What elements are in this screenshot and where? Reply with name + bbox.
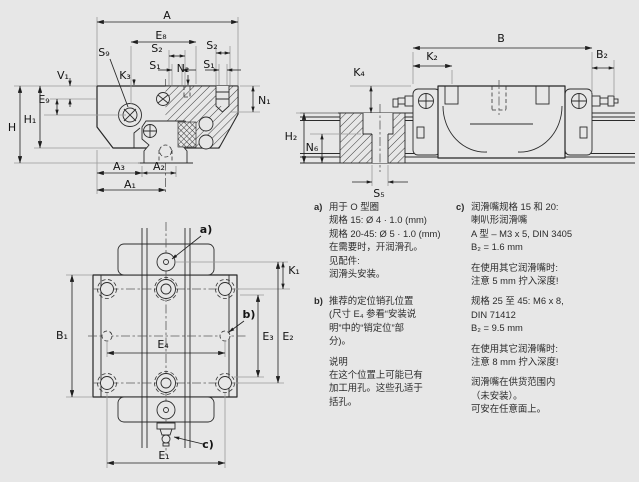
note-b: b) 推荐的定位销孔位置 (尺寸 E₄ 参看“安装说 明”中的“销定位”部 分)… [314, 294, 458, 408]
dim-label-A: A [163, 9, 171, 22]
lube-port-hole-icon [157, 401, 175, 419]
dim-label-K2: K₂ [426, 50, 438, 63]
note-b-body: 推荐的定位销孔位置 (尺寸 E₄ 参看“安装说 明”中的“销定位”部 分)。 说… [329, 294, 458, 408]
note-c-body: 润滑嘴规格 15 和 20: 喇叭形润滑嘴 A 型 – M3 x 5, DIN … [471, 200, 636, 416]
callout-c: c) [202, 438, 214, 451]
ball-icon [143, 124, 157, 138]
dim-label-E2: E₂ [282, 330, 293, 343]
carriage-body [438, 86, 565, 158]
dim-label-A3: A₃ [113, 160, 125, 173]
dim-label-E3: E₃ [262, 330, 273, 343]
dim-label-S2-right: S₂ [206, 39, 217, 52]
note-c-marker: c) [456, 200, 471, 416]
dim-label-K3: K₃ [119, 69, 131, 82]
cross-section-view: A E₈ S₂ S₁ N₂ S₂ S₁ S₉ K₃ V₁ E₉ H H₁ N₁ … [8, 9, 271, 194]
side-view-geometry [300, 80, 635, 172]
grease-nipple-icon [157, 423, 175, 446]
dim-label-S1-left: S₁ [149, 59, 160, 72]
top-view: B₁ E₄ E₁ K₁ E₃ E₂ a) b) c) [56, 222, 300, 468]
note-c-paragraph: 润滑嘴规格 15 和 20: 喇叭形润滑嘴 A 型 – M3 x 5, DIN … [471, 200, 636, 254]
note-c-paragraph: 在使用其它润滑嘴时: 注意 8 mm 拧入深度! [471, 342, 636, 369]
note-a: a) 用于 O 型圈 规格 15: Ø 4 · 1.0 (mm) 规格 20-4… [314, 200, 458, 280]
dim-label-H1: H₁ [24, 113, 37, 126]
note-a-marker: a) [314, 200, 329, 280]
dim-label-B: B [497, 32, 505, 45]
grease-nipple-icon [393, 96, 413, 107]
dim-label-A1: A₁ [124, 178, 136, 191]
dim-label-B1: B₁ [56, 329, 68, 342]
note-a-body: 用于 O 型圈 规格 15: Ø 4 · 1.0 (mm) 规格 20-45: … [329, 200, 458, 280]
dim-label-K1: K₁ [288, 264, 300, 277]
note-c-paragraph: 在使用其它润滑嘴时: 注意 5 mm 拧入深度! [471, 261, 636, 288]
catalog-figure-page: A E₈ S₂ S₁ N₂ S₂ S₁ S₉ K₃ V₁ E₉ H H₁ N₁ … [0, 0, 639, 482]
note-c-paragraph: 润滑嘴在供货范围内 （未安装）。 可安在任意面上。 [471, 375, 636, 415]
dim-label-N1: N₁ [258, 94, 271, 107]
note-b-paragraph: 推荐的定位销孔位置 (尺寸 E₄ 参看“安装说 明”中的“销定位”部 分)。 [329, 294, 458, 348]
rail-bolt-icon [157, 93, 170, 106]
dim-label-K4: K₄ [353, 66, 365, 79]
grease-nipple-icon [592, 96, 618, 106]
dim-label-S2-left: S₂ [151, 42, 162, 55]
dowel-hole-icon [102, 331, 112, 341]
dim-label-S9: S₉ [98, 46, 109, 59]
note-b-paragraph: 说明 在这个位置上可能已有 加工用孔。这些孔适于 括孔。 [329, 355, 458, 409]
note-a-paragraph: 用于 O 型圈 规格 15: Ø 4 · 1.0 (mm) 规格 20-45: … [329, 200, 458, 280]
ball-bore-icon [199, 135, 213, 149]
dim-label-H2: H₂ [285, 130, 298, 143]
dim-label-E4: E₄ [157, 338, 169, 351]
lube-port-hole-icon [157, 253, 175, 271]
dowel-hole-icon [220, 331, 230, 341]
note-b-marker: b) [314, 294, 329, 408]
callout-b: b) [243, 308, 256, 321]
carriage-side [393, 80, 618, 158]
dim-label-A2: A₂ [153, 160, 165, 173]
side-view: B K₂ B₂ K₄ H₂ N₆ S₅ [285, 32, 635, 200]
dim-label-B2: B₂ [596, 48, 608, 61]
ball-bore-icon [199, 117, 213, 131]
dim-label-S1-right: S₁ [203, 58, 214, 71]
dim-label-E9: E₉ [38, 93, 49, 106]
dim-label-E8: E₈ [155, 29, 167, 42]
callout-a: a) [200, 223, 212, 236]
dim-label-E1: E₁ [158, 449, 169, 462]
dim-label-N6: N₆ [306, 141, 319, 154]
cross-section-geometry [97, 79, 238, 194]
dim-label-V1: V₁ [57, 69, 69, 82]
dim-label-H: H [8, 121, 16, 134]
dim-label-N2: N₂ [177, 62, 190, 75]
note-c-paragraph: 规格 25 至 45: M6 x 8, DIN 71412 B₂ = 9.5 m… [471, 294, 636, 334]
lube-port-icon [419, 94, 434, 109]
note-c: c) 润滑嘴规格 15 和 20: 喇叭形润滑嘴 A 型 – M3 x 5, D… [456, 200, 636, 416]
lube-port-icon [572, 94, 587, 109]
ball-contact-zone [178, 122, 196, 147]
rail-section-block [340, 104, 405, 172]
dim-label-S5: S₅ [373, 187, 384, 200]
